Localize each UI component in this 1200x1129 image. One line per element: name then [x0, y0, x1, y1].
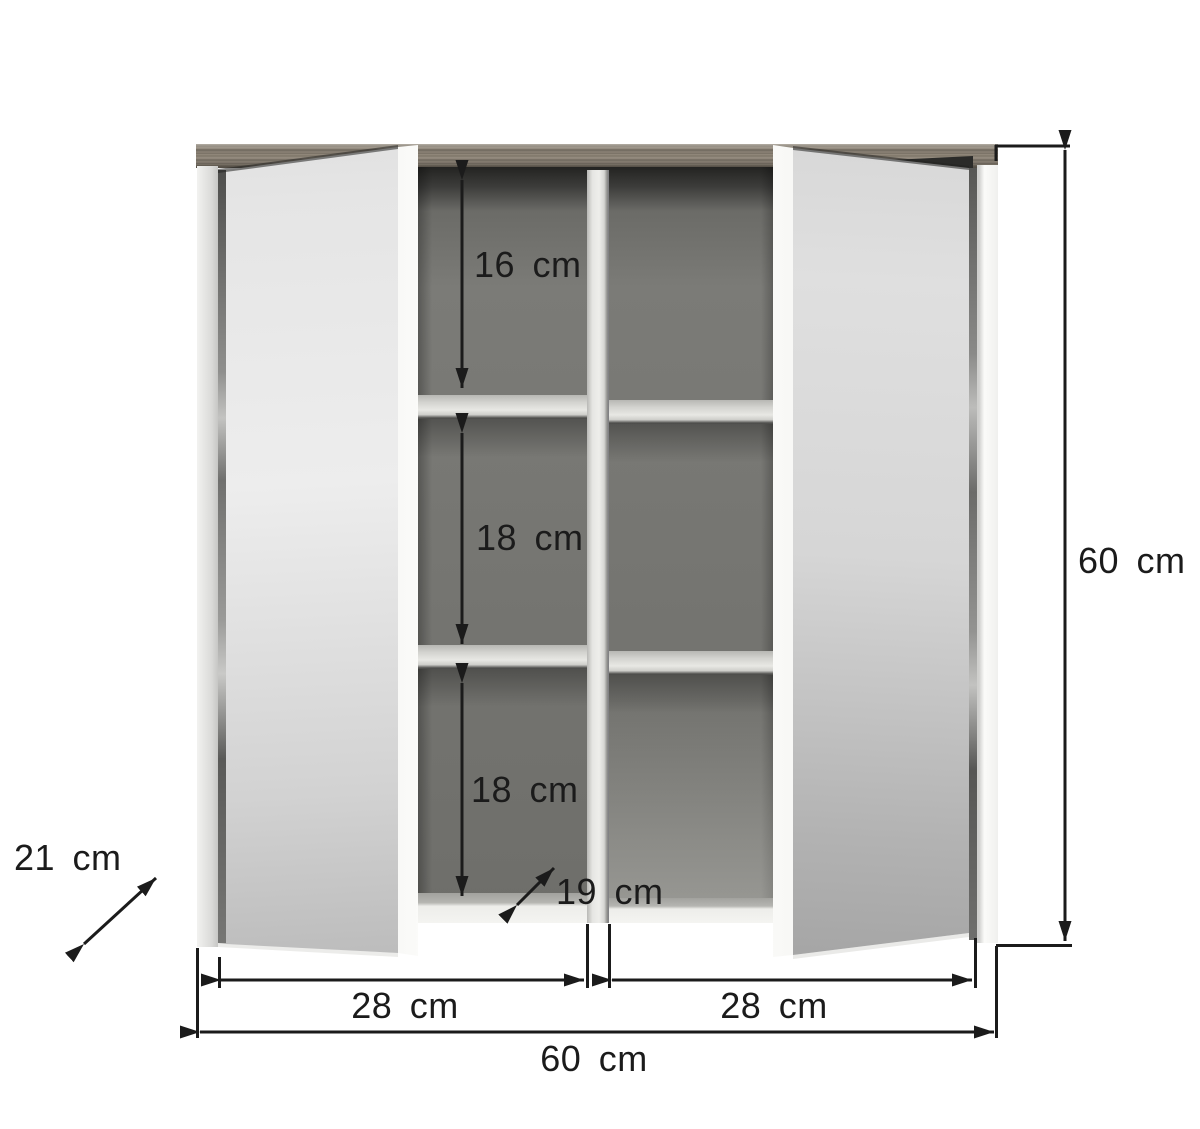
cabinet-dimension-diagram: 16 cm 18 cm 18 cm 19 cm 21 cm 28 cm 28 c…	[0, 0, 1200, 1129]
dim-label-28cm-right: 28 cm	[720, 985, 828, 1026]
dim-arrow-21cm-depth	[84, 878, 156, 944]
dim-label-18cm-middle: 18 cm	[476, 517, 584, 558]
dimension-lines	[0, 0, 1200, 1129]
dim-label-19cm: 19 cm	[556, 871, 664, 912]
dim-arrow-19cm-depth	[517, 868, 554, 905]
dim-label-21cm: 21 cm	[14, 837, 122, 878]
dim-label-16cm: 16 cm	[474, 244, 582, 285]
dim-label-18cm-bottom: 18 cm	[471, 769, 579, 810]
dim-label-28cm-left: 28 cm	[351, 985, 459, 1026]
dim-label-60cm-height: 60 cm	[1078, 540, 1186, 581]
dim-label-60cm-width: 60 cm	[540, 1038, 648, 1079]
